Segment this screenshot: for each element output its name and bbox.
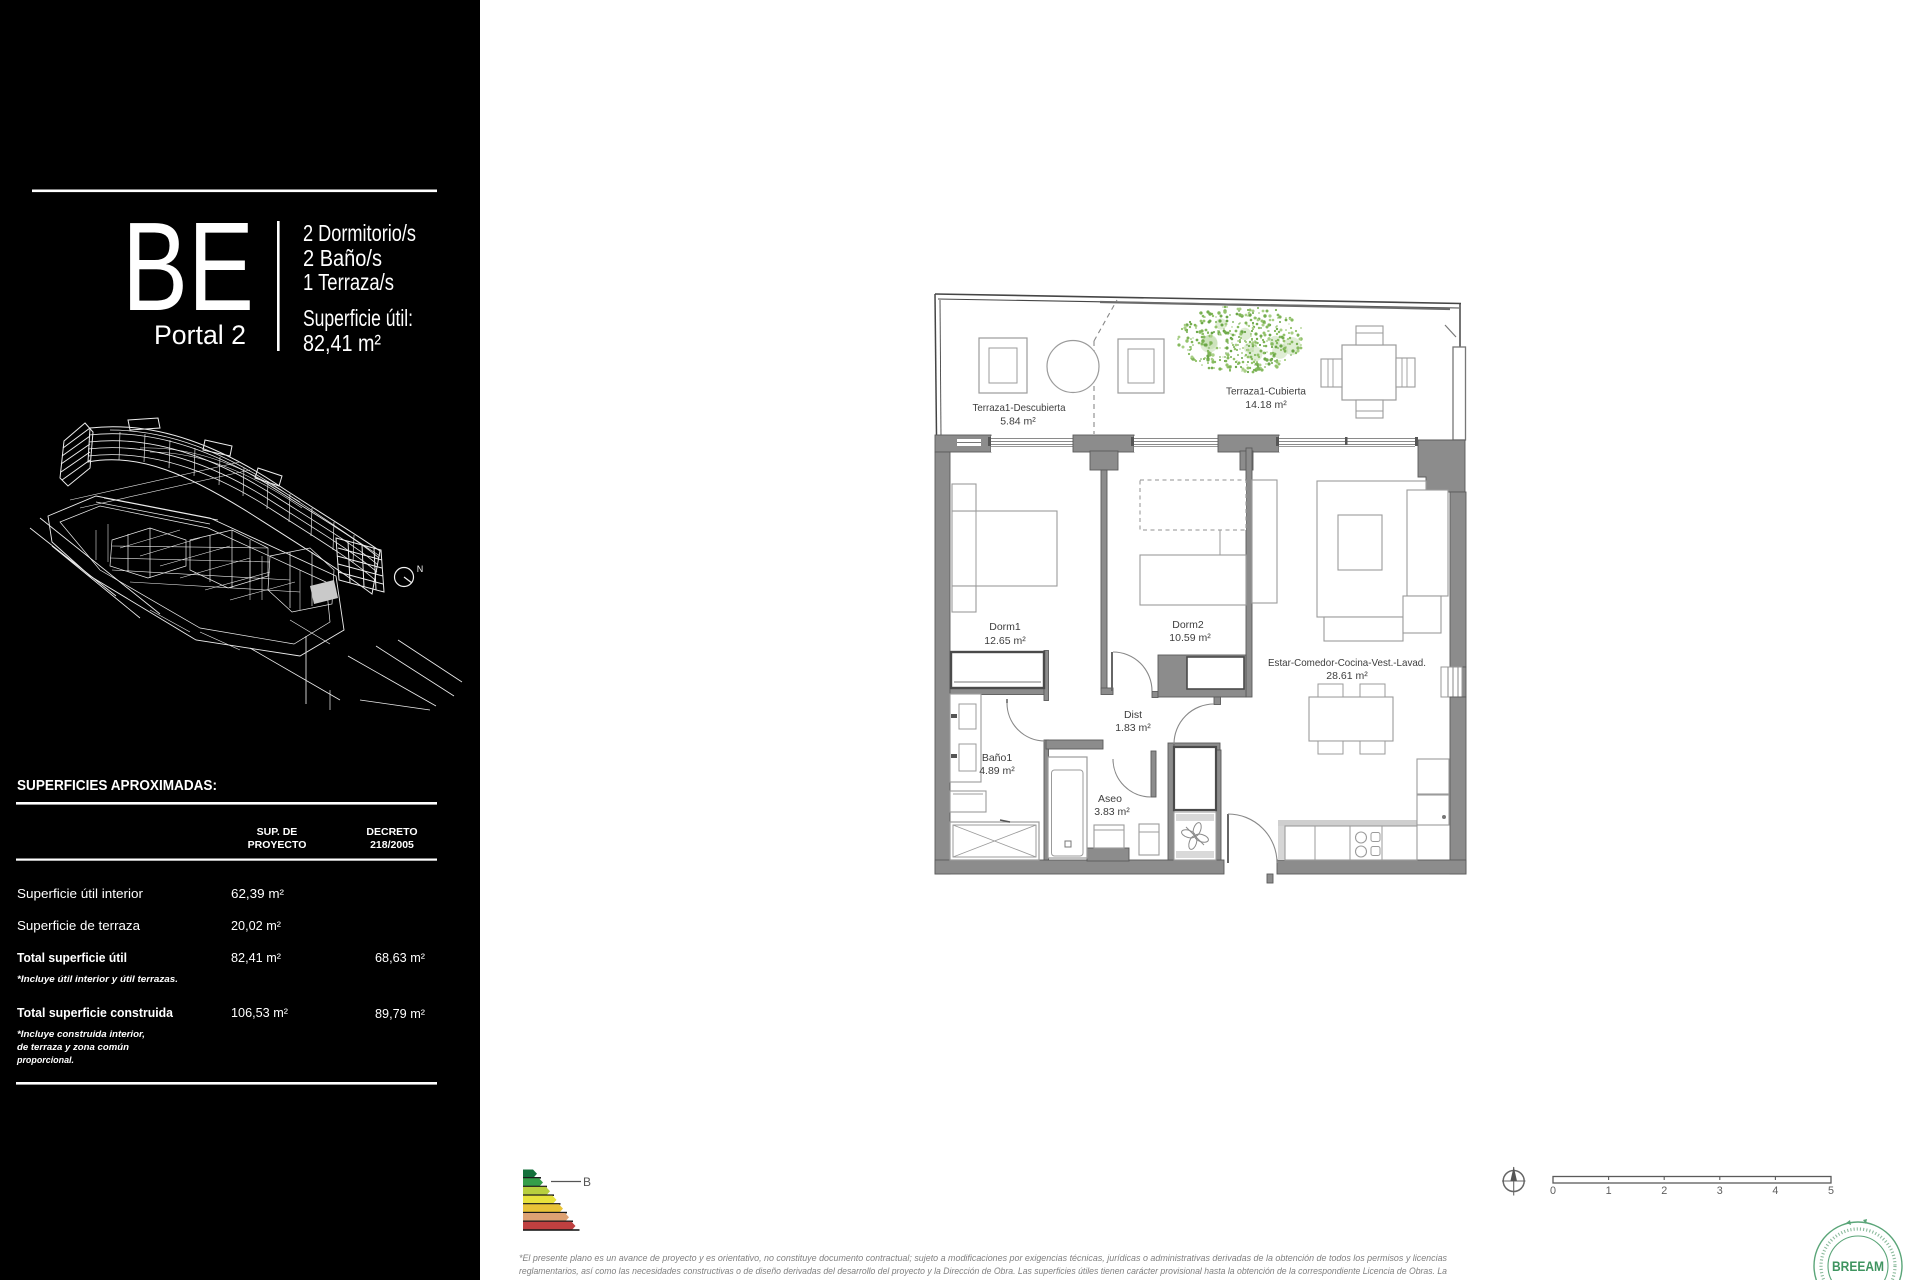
svg-text:Aseo: Aseo (1098, 793, 1122, 805)
svg-text:Dorm2: Dorm2 (1172, 619, 1204, 631)
svg-text:SUP. DE: SUP. DE (257, 826, 298, 838)
svg-text:Superficie de terraza: Superficie de terraza (17, 918, 141, 933)
svg-text:82,41 m²: 82,41 m² (231, 951, 281, 965)
svg-text:3.83 m²: 3.83 m² (1094, 806, 1130, 818)
svg-text:1.83 m²: 1.83 m² (1115, 722, 1151, 734)
svg-text:5: 5 (1828, 1185, 1834, 1197)
svg-text:*Incluye construida interior,: *Incluye construida interior, (17, 1029, 145, 1040)
svg-text:Total superficie construida: Total superficie construida (17, 1005, 174, 1020)
svg-text:Baño1: Baño1 (982, 752, 1013, 764)
svg-text:2: 2 (1661, 1185, 1667, 1197)
svg-text:218/2005: 218/2005 (370, 839, 414, 851)
svg-text:Estar-Comedor-Cocina-Vest.-Lav: Estar-Comedor-Cocina-Vest.-Lavad. (1268, 657, 1426, 669)
svg-text:de terraza y zona común: de terraza y zona común (17, 1042, 129, 1053)
svg-text:0: 0 (1550, 1185, 1556, 1197)
svg-text:Superficie útil interior: Superficie útil interior (17, 886, 144, 901)
svg-text:20,02 m²: 20,02 m² (231, 919, 281, 933)
svg-text:5.84 m²: 5.84 m² (1000, 416, 1036, 428)
svg-text:proporcional.: proporcional. (16, 1055, 74, 1066)
svg-text:Portal 2: Portal 2 (154, 320, 246, 350)
svg-text:Terraza1-Descubierta: Terraza1-Descubierta (973, 402, 1066, 414)
svg-text:BE: BE (122, 196, 254, 337)
svg-text:2 Baño/s: 2 Baño/s (303, 245, 382, 271)
svg-text:N: N (417, 564, 424, 574)
svg-text:12.65 m²: 12.65 m² (984, 635, 1026, 647)
svg-text:BREEAM: BREEAM (1832, 1259, 1884, 1274)
svg-text:2 Dormitorio/s: 2 Dormitorio/s (303, 220, 416, 246)
svg-text:Superficie útil:: Superficie útil: (303, 305, 413, 331)
svg-text:*Incluye útil interior y útil: *Incluye útil interior y útil terrazas. (17, 974, 178, 985)
svg-text:68,63 m²: 68,63 m² (375, 951, 425, 965)
svg-text:*El presente plano es un avanc: *El presente plano es un avance de proye… (519, 1253, 1448, 1263)
svg-text:SUPERFICIES APROXIMADAS:: SUPERFICIES APROXIMADAS: (17, 778, 217, 794)
svg-text:PROYECTO: PROYECTO (248, 839, 307, 851)
svg-text:1: 1 (1606, 1185, 1612, 1197)
svg-text:B: B (583, 1175, 591, 1189)
svg-text:DECRETO: DECRETO (366, 826, 417, 838)
svg-text:106,53 m²: 106,53 m² (231, 1006, 288, 1020)
svg-text:62,39 m²: 62,39 m² (231, 887, 284, 901)
svg-text:1 Terraza/s: 1 Terraza/s (303, 269, 394, 295)
svg-text:28.61 m²: 28.61 m² (1326, 670, 1368, 682)
svg-text:Total superficie útil: Total superficie útil (17, 950, 127, 965)
svg-text:Dist: Dist (1124, 709, 1142, 721)
svg-text:reglamentarios, así como las n: reglamentarios, así como las necesidades… (519, 1266, 1447, 1276)
svg-text:Dorm1: Dorm1 (989, 621, 1021, 633)
svg-text:14.18 m²: 14.18 m² (1245, 399, 1287, 411)
svg-text:82,41 m²: 82,41 m² (303, 330, 381, 356)
svg-text:89,79 m²: 89,79 m² (375, 1007, 425, 1021)
svg-text:4.89 m²: 4.89 m² (979, 765, 1015, 777)
svg-text:4: 4 (1772, 1185, 1778, 1197)
svg-text:Terraza1-Cubierta: Terraza1-Cubierta (1226, 386, 1306, 398)
svg-text:10.59 m²: 10.59 m² (1169, 632, 1211, 644)
svg-text:3: 3 (1717, 1185, 1723, 1197)
